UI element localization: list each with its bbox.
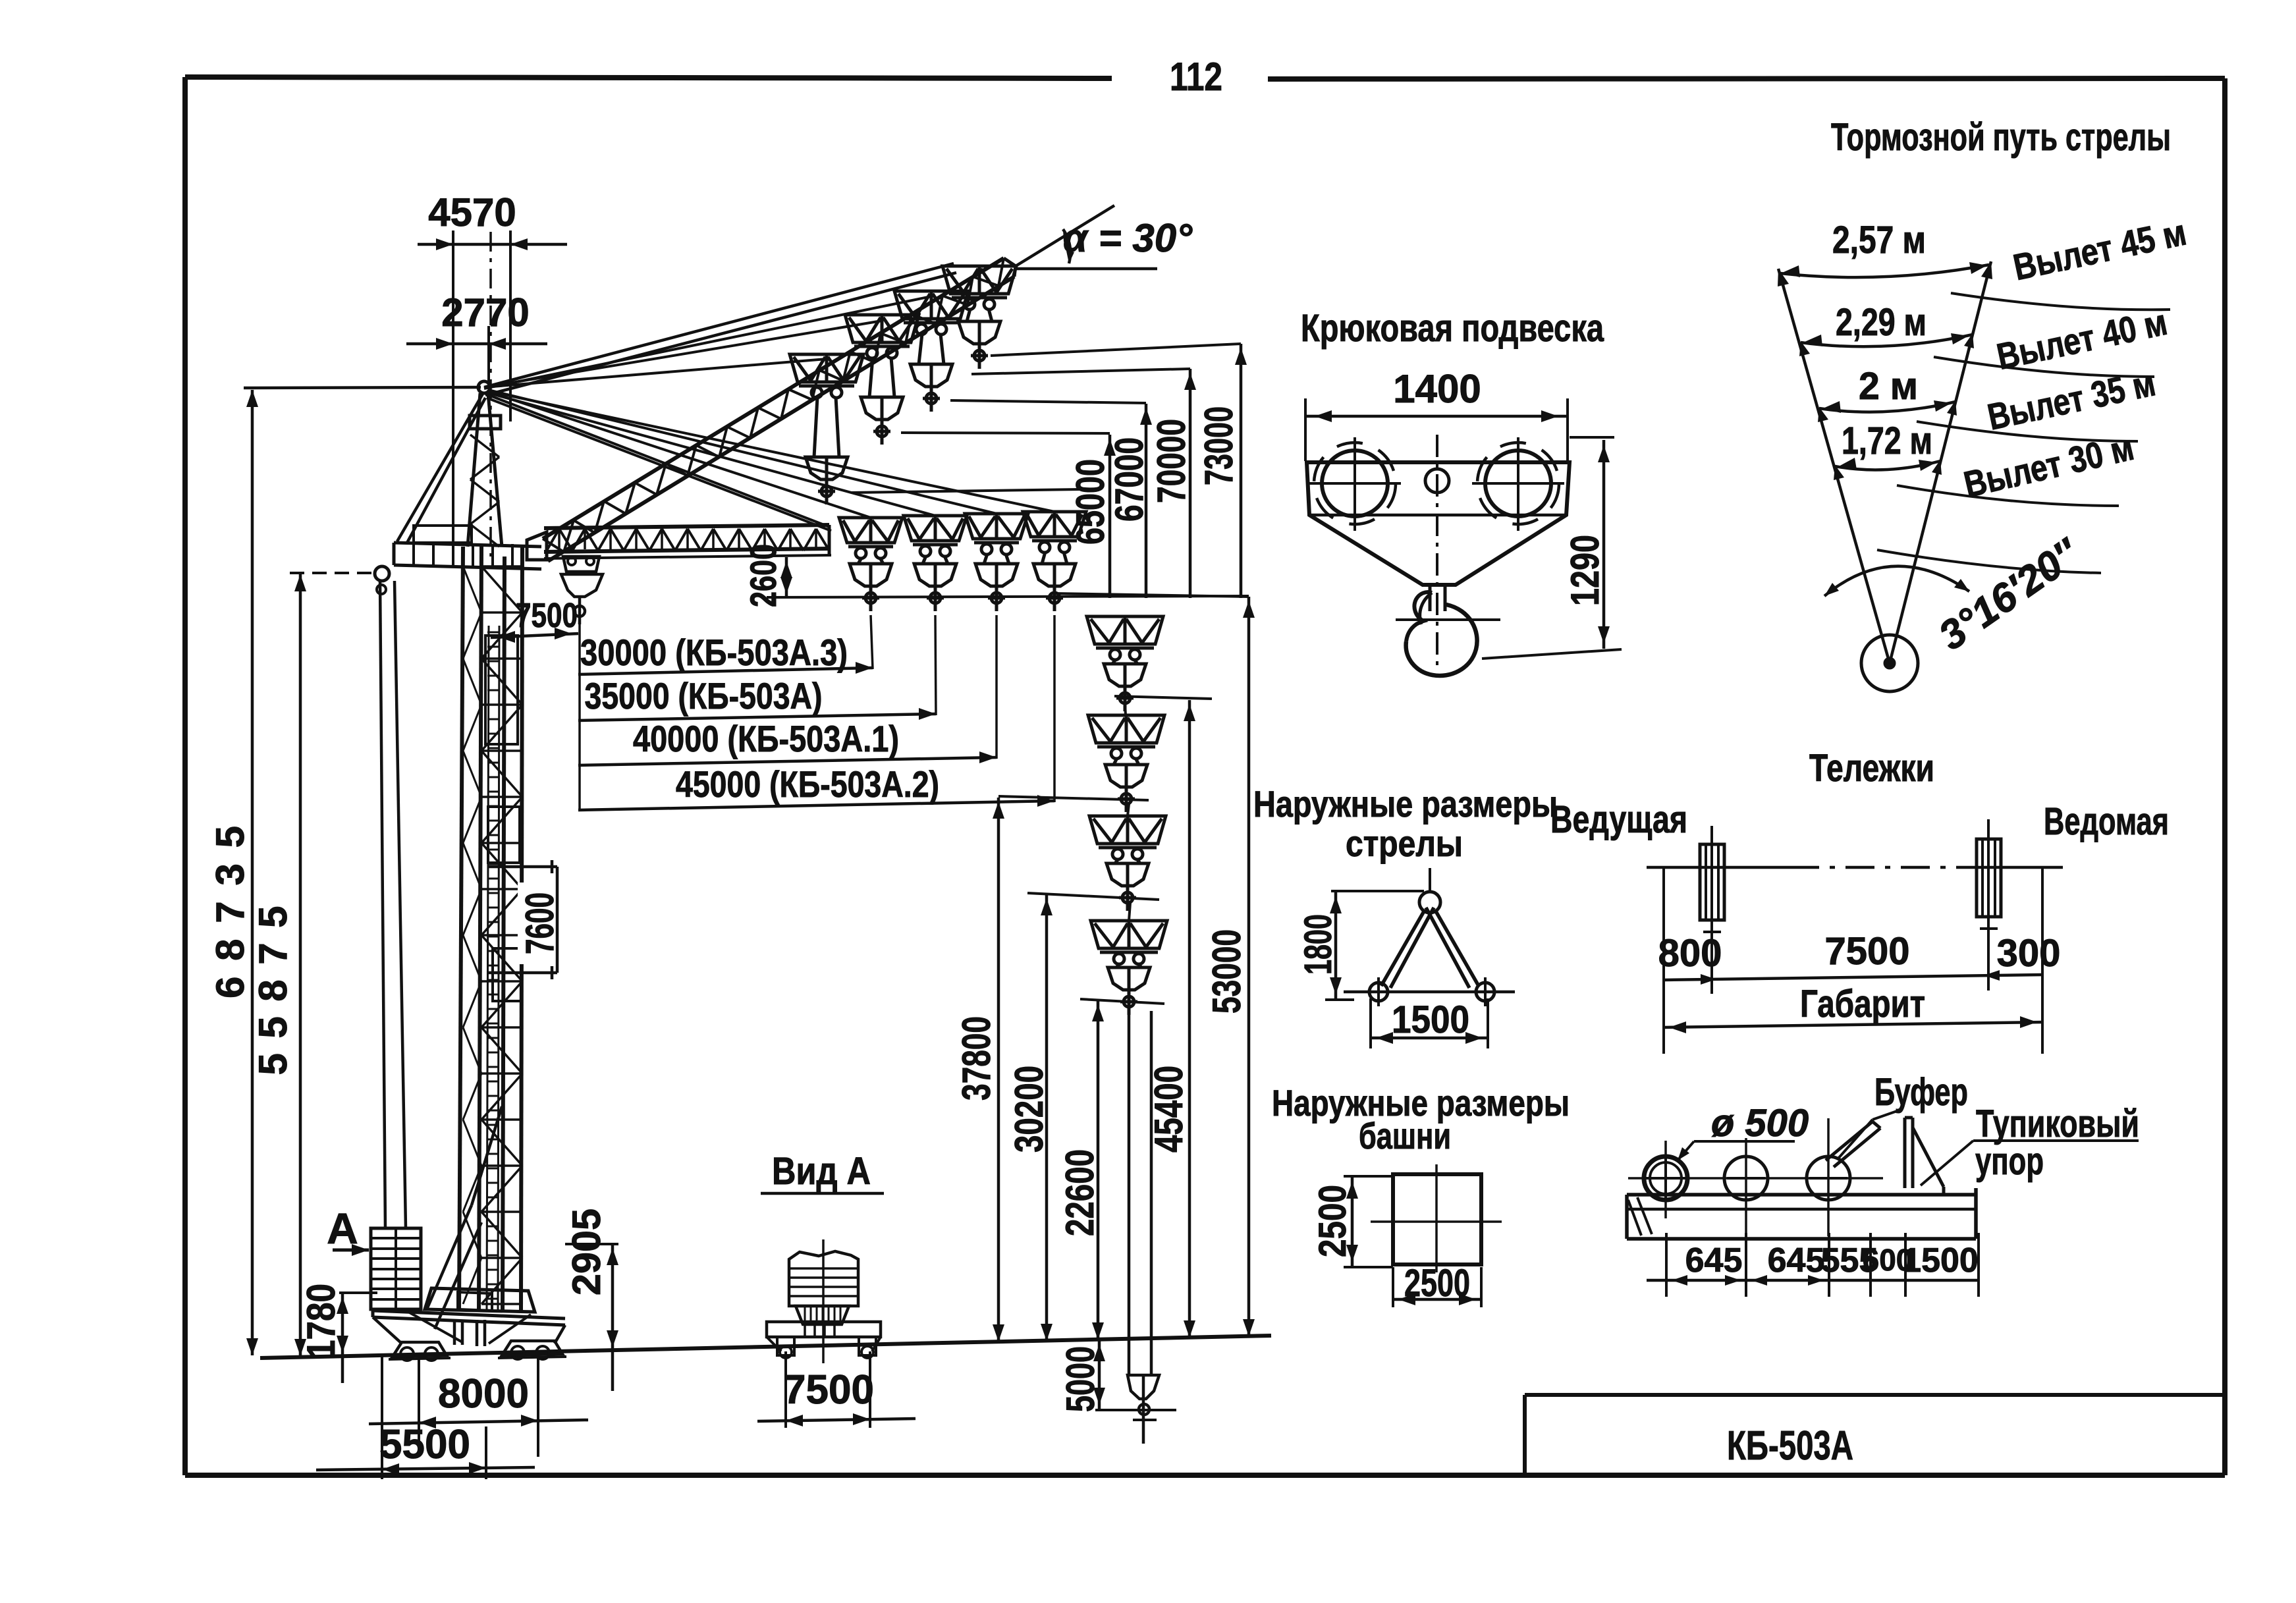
svg-text:112: 112 [1170, 55, 1222, 99]
svg-text:Буфер: Буфер [1874, 1071, 1968, 1114]
svg-text:645: 645 [1685, 1241, 1743, 1280]
svg-text:37800: 37800 [954, 1016, 998, 1100]
svg-text:Тупиковый: Тупиковый [1976, 1102, 2139, 1145]
svg-text:35000 (КБ-503А): 35000 (КБ-503А) [585, 675, 823, 717]
svg-text:1780: 1780 [299, 1284, 343, 1359]
svg-text:73000: 73000 [1197, 406, 1241, 485]
svg-text:1800: 1800 [1297, 914, 1340, 975]
svg-text:башни: башни [1359, 1115, 1451, 1156]
svg-text:5500: 5500 [379, 1422, 470, 1467]
svg-text:1,72 м: 1,72 м [1842, 420, 1932, 462]
svg-text:4570: 4570 [428, 190, 516, 234]
svg-text:1290: 1290 [1563, 535, 1607, 606]
svg-text:2,57 м: 2,57 м [1832, 219, 1926, 261]
svg-text:30000 (КБ-503А.3): 30000 (КБ-503А.3) [580, 632, 848, 673]
svg-text:7500: 7500 [783, 1367, 874, 1413]
svg-text:2500: 2500 [1404, 1262, 1470, 1305]
svg-text:2 м: 2 м [1859, 365, 1918, 408]
svg-text:Крюковая подвеска: Крюковая подвеска [1301, 307, 1604, 350]
svg-text:300: 300 [1997, 932, 2061, 975]
svg-text:22600: 22600 [1058, 1149, 1102, 1236]
svg-text:67000: 67000 [1107, 437, 1151, 522]
svg-text:1500: 1500 [1902, 1241, 1979, 1280]
svg-text:5000: 5000 [1058, 1346, 1103, 1412]
svg-text:7500: 7500 [1824, 930, 1909, 973]
svg-text:Наружные размеры: Наружные размеры [1253, 783, 1558, 825]
svg-text:7500: 7500 [516, 597, 578, 635]
svg-text:КБ-503А: КБ-503А [1727, 1423, 1853, 1469]
svg-text:Вид А: Вид А [772, 1150, 871, 1193]
svg-text:стрелы: стрелы [1346, 823, 1463, 864]
svg-text:2500: 2500 [1311, 1185, 1354, 1257]
svg-text:Габарит: Габарит [1800, 983, 1925, 1025]
svg-text:Ведущая: Ведущая [1550, 798, 1687, 841]
svg-text:65000: 65000 [1068, 459, 1112, 545]
svg-text:8000: 8000 [438, 1371, 529, 1417]
svg-text:645: 645 [1768, 1241, 1825, 1280]
svg-text:2905: 2905 [564, 1209, 609, 1295]
svg-text:7600: 7600 [518, 892, 562, 954]
svg-text:Тормозной путь стрелы: Тормозной путь стрелы [1831, 116, 2171, 159]
svg-text:упор: упор [1975, 1140, 2044, 1183]
svg-text:30200: 30200 [1007, 1066, 1051, 1153]
svg-text:2770: 2770 [441, 290, 529, 335]
svg-text:Тележки: Тележки [1809, 747, 1934, 790]
svg-text:1500: 1500 [1392, 998, 1469, 1041]
svg-text:45000 (КБ-503А.2): 45000 (КБ-503А.2) [676, 763, 939, 805]
svg-text:ø 500: ø 500 [1711, 1102, 1809, 1145]
svg-text:40000 (КБ-503А.1): 40000 (КБ-503А.1) [633, 718, 899, 759]
svg-text:45400: 45400 [1147, 1066, 1191, 1153]
svg-text:53000: 53000 [1205, 929, 1249, 1014]
svg-text:70000: 70000 [1149, 419, 1193, 503]
svg-text:2,29 м: 2,29 м [1836, 301, 1927, 344]
svg-text:α = 30°: α = 30° [1063, 216, 1193, 260]
svg-text:1400: 1400 [1393, 367, 1481, 411]
svg-text:800: 800 [1658, 932, 1722, 975]
svg-text:Ведомая: Ведомая [2044, 800, 2169, 843]
